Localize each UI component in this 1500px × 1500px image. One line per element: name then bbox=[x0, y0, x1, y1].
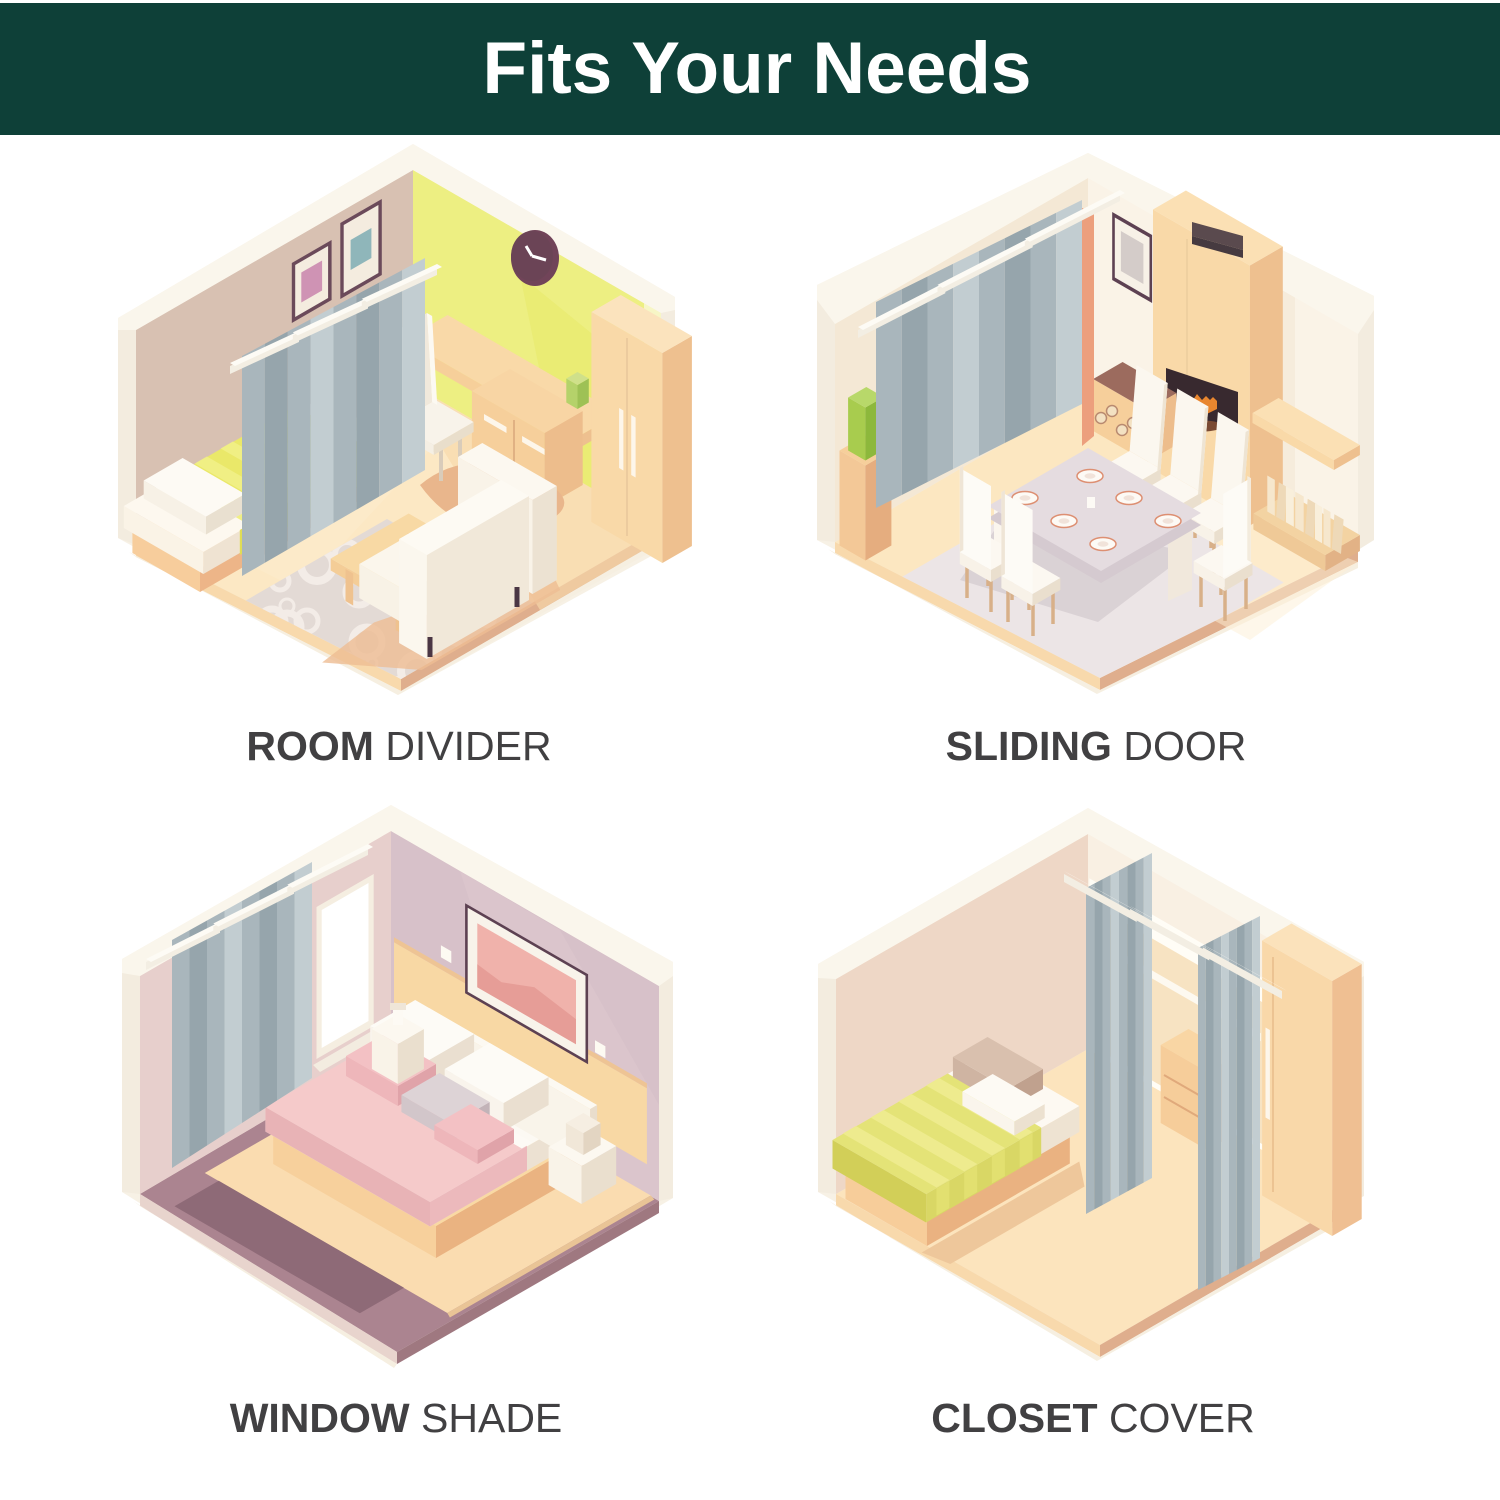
svg-text:WINDOW SHADE: WINDOW SHADE bbox=[230, 1395, 563, 1441]
svg-text:Fits Your Needs: Fits Your Needs bbox=[483, 28, 1032, 109]
svg-text:CLOSET COVER: CLOSET COVER bbox=[931, 1395, 1255, 1441]
svg-text:SLIDING DOOR: SLIDING DOOR bbox=[946, 723, 1247, 769]
svg-text:ROOM DIVIDER: ROOM DIVIDER bbox=[246, 723, 551, 769]
